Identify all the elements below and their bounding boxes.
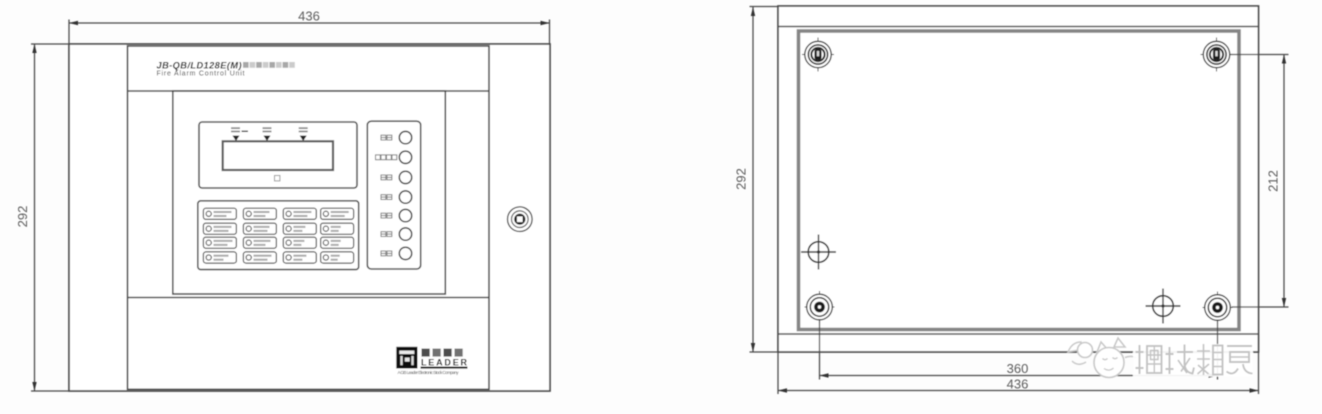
- svg-text:JB-QB/LD128E(M): JB-QB/LD128E(M): [157, 61, 242, 71]
- svg-text:212: 212: [1266, 170, 1281, 192]
- svg-text:436: 436: [1007, 377, 1029, 392]
- svg-text:LEADER: LEADER: [421, 358, 468, 368]
- svg-text:292: 292: [734, 168, 749, 190]
- svg-text:360: 360: [1007, 361, 1029, 376]
- svg-text:292: 292: [15, 206, 30, 228]
- svg-text:436: 436: [298, 9, 320, 24]
- svg-text:Fire Alarm Control Unit: Fire Alarm Control Unit: [157, 71, 245, 78]
- svg-text:A GB Leader Electronic Stock C: A GB Leader Electronic Stock Company: [398, 370, 460, 375]
